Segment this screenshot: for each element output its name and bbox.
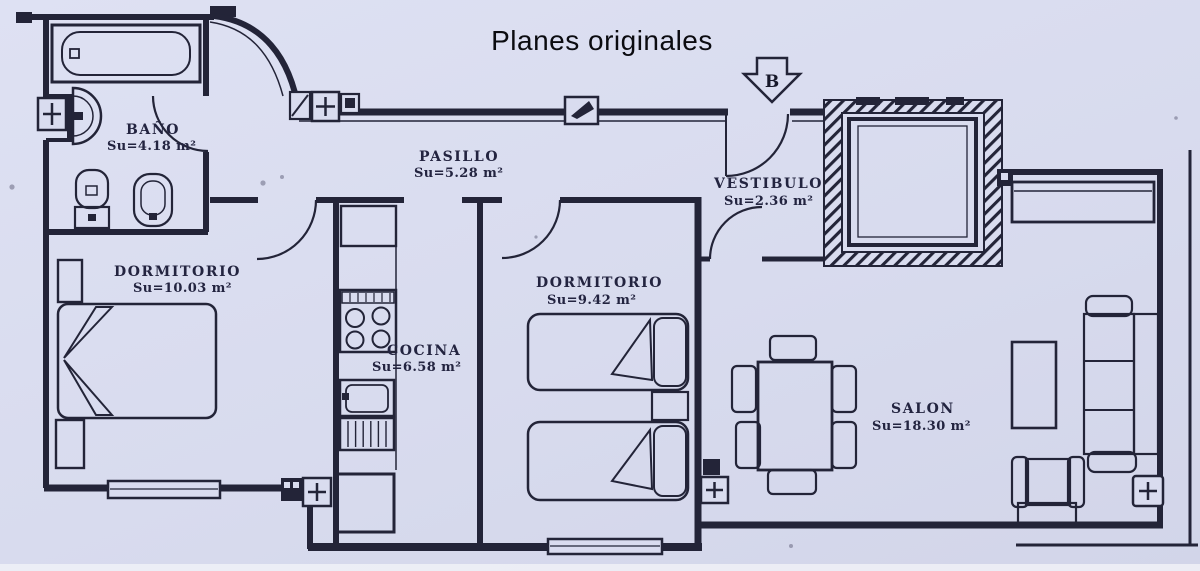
pillow [654, 318, 686, 386]
bidet [134, 174, 172, 226]
nightstand [58, 260, 82, 302]
entrance-arrow-label: B [765, 72, 779, 92]
room-area-bano: Su=4.18 m² [107, 139, 196, 154]
radiator-salon-right [1133, 476, 1163, 506]
vestibule-door-arc [710, 207, 762, 259]
room-area-vestibulo: Su=2.36 m² [724, 194, 813, 209]
washbasin [73, 88, 101, 144]
pillow [654, 426, 686, 496]
bed-fold [64, 360, 112, 415]
bed-fold [612, 430, 652, 489]
nightstand [56, 420, 84, 468]
double-bed [58, 304, 216, 418]
kitchen-sink [340, 380, 394, 416]
chair [770, 336, 816, 360]
room-label-salon: SALON [891, 401, 955, 417]
fridge [336, 474, 394, 532]
room-area-pasillo: Su=5.28 m² [414, 166, 503, 181]
room-label-vestibulo: VESTIBULO [713, 176, 823, 192]
single-bed [528, 314, 688, 390]
entrance-door-arc [726, 114, 788, 176]
bedroom2-door-arc [502, 200, 560, 258]
armchair [1012, 457, 1084, 525]
bed-fold [612, 320, 652, 380]
radiator-bathroom [38, 98, 66, 130]
room-area-salon: Su=18.30 m² [872, 419, 971, 434]
chair [768, 470, 816, 494]
floor-plan-drawing: B Planes originales BAÑO Su=4.18 m² PASI… [0, 0, 1200, 571]
salon-furniture [1012, 182, 1158, 525]
radiator-salon-left [701, 459, 728, 503]
room-area-cocina: Su=6.58 m² [372, 360, 461, 375]
chair [736, 422, 760, 468]
bedroom1-door-arc [257, 200, 316, 259]
room-area-dormitorio1: Su=10.03 m² [133, 281, 232, 296]
bathtub [52, 25, 200, 82]
page-title: Planes originales [491, 25, 713, 56]
room-label-dormitorio2: DORMITORIO [536, 275, 663, 291]
room-label-pasillo: PASILLO [419, 149, 499, 165]
toilet [75, 170, 109, 228]
scanned-floor-plan-page: B Planes originales BAÑO Su=4.18 m² PASI… [0, 0, 1200, 571]
room-label-cocina: COCINA [387, 343, 461, 359]
sideboard [1012, 182, 1154, 222]
chair [832, 366, 856, 412]
radiator-corridor [312, 92, 339, 121]
room-label-bano: BAÑO [126, 119, 180, 138]
single-bed [528, 422, 688, 500]
room-area-dormitorio2: Su=9.42 m² [547, 293, 636, 308]
dining-set [732, 336, 856, 494]
chair [832, 422, 856, 468]
room-label-dormitorio1: DORMITORIO [114, 264, 241, 280]
entrance-arrow: B [744, 58, 800, 102]
kitchen-cabinet [341, 206, 396, 246]
stair-shaft [824, 97, 1013, 266]
bedroom2-furniture [528, 314, 688, 500]
scan-edge [0, 564, 1200, 571]
coffee-table [1012, 342, 1056, 428]
nightstand [652, 392, 688, 420]
radiator-kitchen [281, 478, 331, 506]
dish-drainer [340, 418, 394, 450]
bed-fold [64, 307, 112, 358]
sofa [1084, 296, 1158, 472]
chair [732, 366, 756, 412]
dining-table [758, 362, 832, 470]
